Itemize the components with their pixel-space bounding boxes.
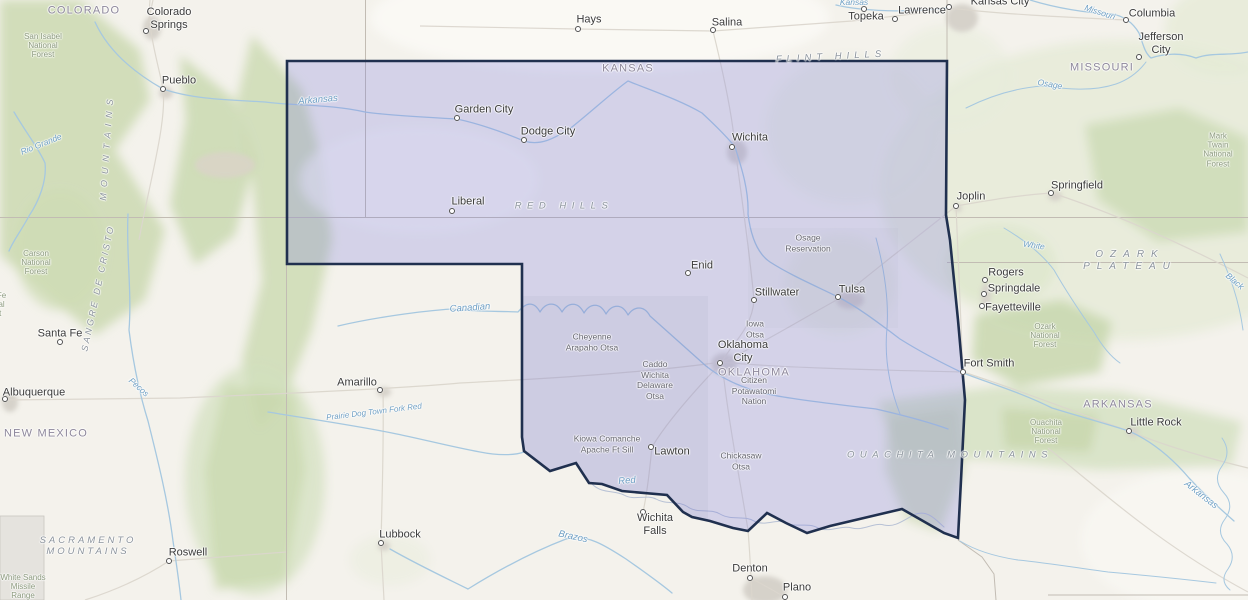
city-dot <box>2 396 8 402</box>
city-dot <box>782 594 788 600</box>
city-dot <box>57 339 63 345</box>
city-dot <box>960 369 966 375</box>
city-dot <box>521 137 527 143</box>
city-dot <box>575 26 581 32</box>
city-dot <box>377 387 383 393</box>
city-dot <box>378 540 384 546</box>
city-dot <box>648 444 654 450</box>
military-area <box>0 516 44 600</box>
city-dot <box>892 16 898 22</box>
city-dot <box>454 115 460 121</box>
city-dot <box>861 6 867 12</box>
city-dot <box>946 4 952 10</box>
city-dot <box>1136 54 1142 60</box>
city-dot <box>717 360 723 366</box>
map-canvas[interactable]: COLORADOKANSASMISSOURIOKLAHOMAARKANSASNE… <box>0 0 1248 600</box>
city-dot <box>835 294 841 300</box>
city-dot <box>751 297 757 303</box>
city-dot <box>1123 17 1129 23</box>
city-dot <box>1048 190 1054 196</box>
city-dot <box>729 144 735 150</box>
basemap <box>0 0 1248 600</box>
city-dot <box>747 575 753 581</box>
city-dot <box>449 208 455 214</box>
city-dot <box>160 86 166 92</box>
city-dot <box>143 28 149 34</box>
city-dot <box>979 303 985 309</box>
city-dot <box>710 27 716 33</box>
city-dot <box>981 291 987 297</box>
city-dot <box>640 509 646 515</box>
city-dot <box>166 558 172 564</box>
city-dot <box>1126 428 1132 434</box>
city-dot <box>953 203 959 209</box>
city-dot <box>685 270 691 276</box>
city-dot <box>982 277 988 283</box>
